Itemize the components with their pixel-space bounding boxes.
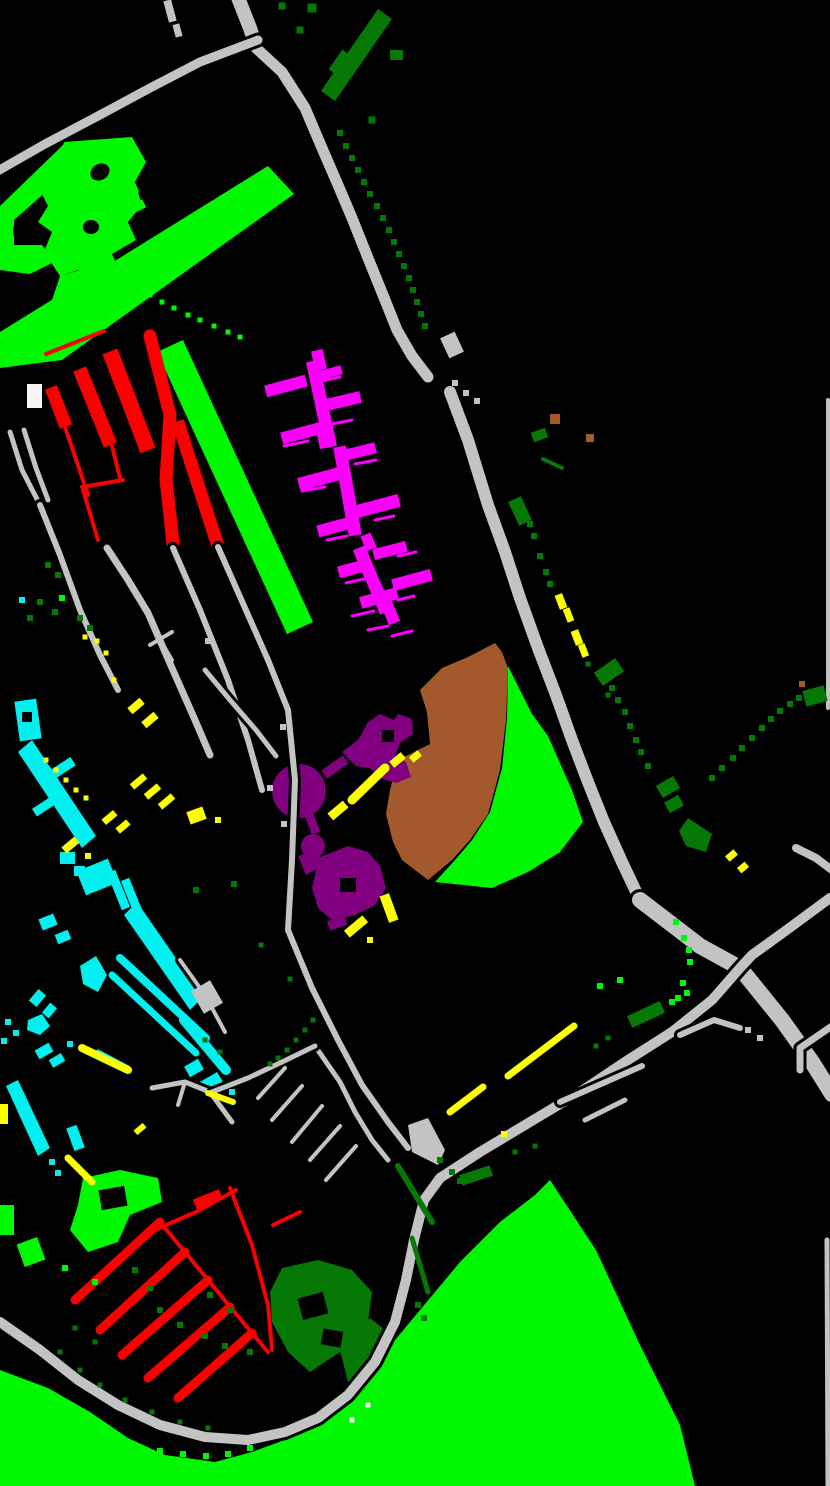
darkgreen-dot [206, 1426, 211, 1431]
yellow-dot [44, 758, 49, 763]
green-dot [198, 318, 203, 323]
darkgreen-dot [37, 599, 43, 605]
green-dot [112, 1437, 118, 1443]
darkgreen-dot [288, 977, 293, 982]
gray-dot [463, 390, 469, 396]
darkgreen-dot [606, 693, 611, 698]
darkgreen-dot [45, 562, 51, 568]
darkgreen-dot [297, 27, 304, 34]
yellow-dot [83, 635, 88, 640]
darkgreen-dot [285, 1048, 290, 1053]
darkgreen-dot [418, 311, 424, 317]
green-dot [109, 243, 115, 249]
darkgreen-dot [457, 1178, 463, 1184]
darkgreen-dot [796, 695, 802, 701]
darkgreen-dot [361, 179, 367, 185]
darkgreen-dot [337, 130, 343, 136]
darkgreen-dot [531, 533, 537, 539]
white-region [27, 384, 42, 408]
darkgreen-dot [768, 716, 774, 722]
darkgreen-dot [132, 1267, 138, 1273]
darkgreen-dot [421, 1315, 427, 1321]
darkgreen-dot [386, 227, 392, 233]
gray-dot [281, 821, 287, 827]
darkgreen-dot [391, 239, 397, 245]
green-dot [203, 1453, 209, 1459]
gray-dot [745, 1027, 751, 1033]
green-dot [617, 977, 623, 983]
classification-map-canvas [0, 0, 830, 1486]
green-dot [157, 1448, 163, 1454]
green-dot [225, 1451, 231, 1457]
cyan-dot [1, 1038, 7, 1044]
darkgreen-dot [606, 1036, 611, 1041]
green-dot [687, 959, 693, 965]
darkgreen-dot [627, 723, 633, 729]
darkgreen-dot [276, 1056, 281, 1061]
darkgreen-dot [396, 251, 402, 257]
green-dot [148, 293, 153, 298]
green-dot [597, 983, 603, 989]
darkgreen-dot [308, 4, 317, 13]
darkgreen-dot [227, 1307, 233, 1313]
darkgreen-dot [98, 1383, 103, 1388]
yellow-dot [54, 768, 59, 773]
darkgreen-dot [203, 1038, 208, 1043]
green-dot [186, 313, 191, 318]
green-dot [681, 935, 687, 941]
darkgreen-dot [52, 609, 58, 615]
yellow-dot [501, 1131, 507, 1137]
darkgreen-dot [415, 1302, 421, 1308]
cyan-dot [67, 1041, 73, 1047]
darkgreen-dot [73, 1326, 78, 1331]
white-dot [366, 1403, 371, 1408]
gray-dot [280, 724, 286, 730]
darkgreen-dot [247, 1349, 253, 1355]
darkgreen-dot [374, 203, 380, 209]
green-dot [684, 990, 690, 996]
darkgreen-dot [410, 287, 416, 293]
green-dot [673, 919, 679, 925]
bg-region [321, 1328, 343, 1347]
green-dot [669, 999, 675, 1005]
green-dot [99, 229, 105, 235]
darkgreen-dot [78, 1368, 83, 1373]
gray-dot [205, 638, 211, 644]
cyan-region [60, 852, 75, 864]
darkgreen-dot [513, 1150, 518, 1155]
yellow-region [0, 1104, 8, 1124]
darkgreen-dot [586, 662, 591, 667]
green-dot [180, 1451, 186, 1457]
darkgreen-dot [709, 775, 715, 781]
darkgreen-dot [178, 1420, 183, 1425]
green-dot [160, 300, 165, 305]
green-dot [680, 980, 686, 986]
darkgreen-dot [303, 1028, 308, 1033]
cyan-dot [19, 597, 25, 603]
brown-region [586, 434, 594, 442]
darkgreen-dot [93, 1340, 98, 1345]
darkgreen-dot [414, 299, 420, 305]
darkgreen-dot [177, 1322, 183, 1328]
darkgreen-dot [380, 215, 386, 221]
green-dot [135, 1444, 141, 1450]
darkgreen-dot [157, 1307, 163, 1313]
bg-region [382, 730, 394, 742]
brown-dot [799, 681, 805, 687]
yellow-dot [95, 639, 100, 644]
darkgreen-dot [730, 755, 736, 761]
gray-dot [474, 398, 480, 404]
darkgreen-dot [787, 701, 793, 707]
green-dot [62, 1265, 68, 1271]
yellow-dot [64, 778, 69, 783]
darkgreen-dot [547, 581, 553, 587]
darkgreen-dot [533, 1144, 538, 1149]
darkgreen-dot [27, 615, 33, 621]
darkgreen-dot [537, 553, 543, 559]
cyan-dot [13, 1030, 19, 1036]
yellow-dot [215, 817, 221, 823]
land-cover-classification-map [0, 0, 830, 1486]
darkgreen-dot [543, 569, 549, 575]
darkgreen-dot [367, 191, 373, 197]
darkgreen-dot [401, 263, 407, 269]
darkgreen-dot [759, 725, 765, 731]
bg-region [340, 878, 356, 892]
yellow-dot [84, 796, 89, 801]
darkgreen-dot [615, 697, 621, 703]
darkgreen-dot [87, 625, 93, 631]
bg-region [22, 712, 32, 722]
brown-region [550, 414, 560, 424]
darkgreen-dot [231, 881, 237, 887]
darkgreen-dot [609, 685, 615, 691]
darkgreen-dot [719, 765, 725, 771]
cyan-dot [55, 1170, 61, 1176]
darkgreen-dot [218, 1050, 223, 1055]
green-dot [686, 947, 692, 953]
darkgreen-dot [521, 509, 527, 515]
green-dot [212, 324, 217, 329]
bg-region [83, 220, 99, 234]
darkgreen-dot [437, 1157, 443, 1163]
darkgreen-dot [294, 1038, 299, 1043]
green-dot [238, 335, 243, 340]
yellow-dot [74, 788, 79, 793]
darkgreen-dot [622, 709, 628, 715]
darkgreen-dot [638, 749, 644, 755]
darkgreen-dot [123, 1398, 128, 1403]
yellow-dot [367, 937, 373, 943]
darkgreen-dot [749, 735, 755, 741]
green-dot [92, 1279, 98, 1285]
gray-dot [267, 785, 273, 791]
darkgreen-dot [150, 1410, 155, 1415]
darkgreen-dot [311, 1018, 316, 1023]
cyan-dot [229, 1089, 235, 1095]
green-dot [172, 306, 177, 311]
yellow-dot [85, 853, 91, 859]
darkgreen-dot [349, 155, 355, 161]
green-dot [226, 330, 231, 335]
darkgreen-dot [207, 1292, 213, 1298]
darkgreen-dot [77, 615, 83, 621]
gray-dot [452, 380, 458, 386]
darkgreen-dot [449, 1169, 455, 1175]
bg-region [13, 217, 41, 245]
darkgreen-dot [55, 572, 61, 578]
darkgreen-dot [645, 763, 651, 769]
darkgreen-dot [279, 3, 286, 10]
darkgreen-dot [58, 1350, 63, 1355]
cyan-dot [5, 1019, 11, 1025]
white-dot [350, 1418, 355, 1423]
yellow-dot [104, 651, 109, 656]
darkgreen-dot [268, 1062, 273, 1067]
darkgreen-dot [739, 745, 745, 751]
darkgreen-dot [343, 143, 349, 149]
green-dot [675, 995, 681, 1001]
gray-region [827, 1240, 828, 1486]
darkgreen-dot [369, 117, 376, 124]
cyan-dot [49, 1159, 55, 1165]
darkgreen-dot [406, 275, 412, 281]
darkgreen-dot [422, 323, 428, 329]
darkgreen-dot [777, 708, 783, 714]
green-dot [107, 259, 113, 265]
green-dot [59, 595, 65, 601]
darkgreen-dot [355, 167, 361, 173]
green-dot [247, 1445, 253, 1451]
darkgreen-dot [527, 521, 533, 527]
gray-dot [757, 1035, 763, 1041]
darkgreen-dot [147, 1285, 153, 1291]
green-region [0, 1205, 14, 1235]
darkgreen-dot [633, 737, 639, 743]
yellow-dot [112, 678, 117, 683]
darkgreen-dot [202, 1333, 208, 1339]
darkgreen-dot [594, 1044, 599, 1049]
darkgreen-dot [222, 1343, 228, 1349]
darkgreen-dot [193, 887, 199, 893]
darkgreen-region [390, 50, 403, 60]
darkgreen-dot [259, 943, 264, 948]
